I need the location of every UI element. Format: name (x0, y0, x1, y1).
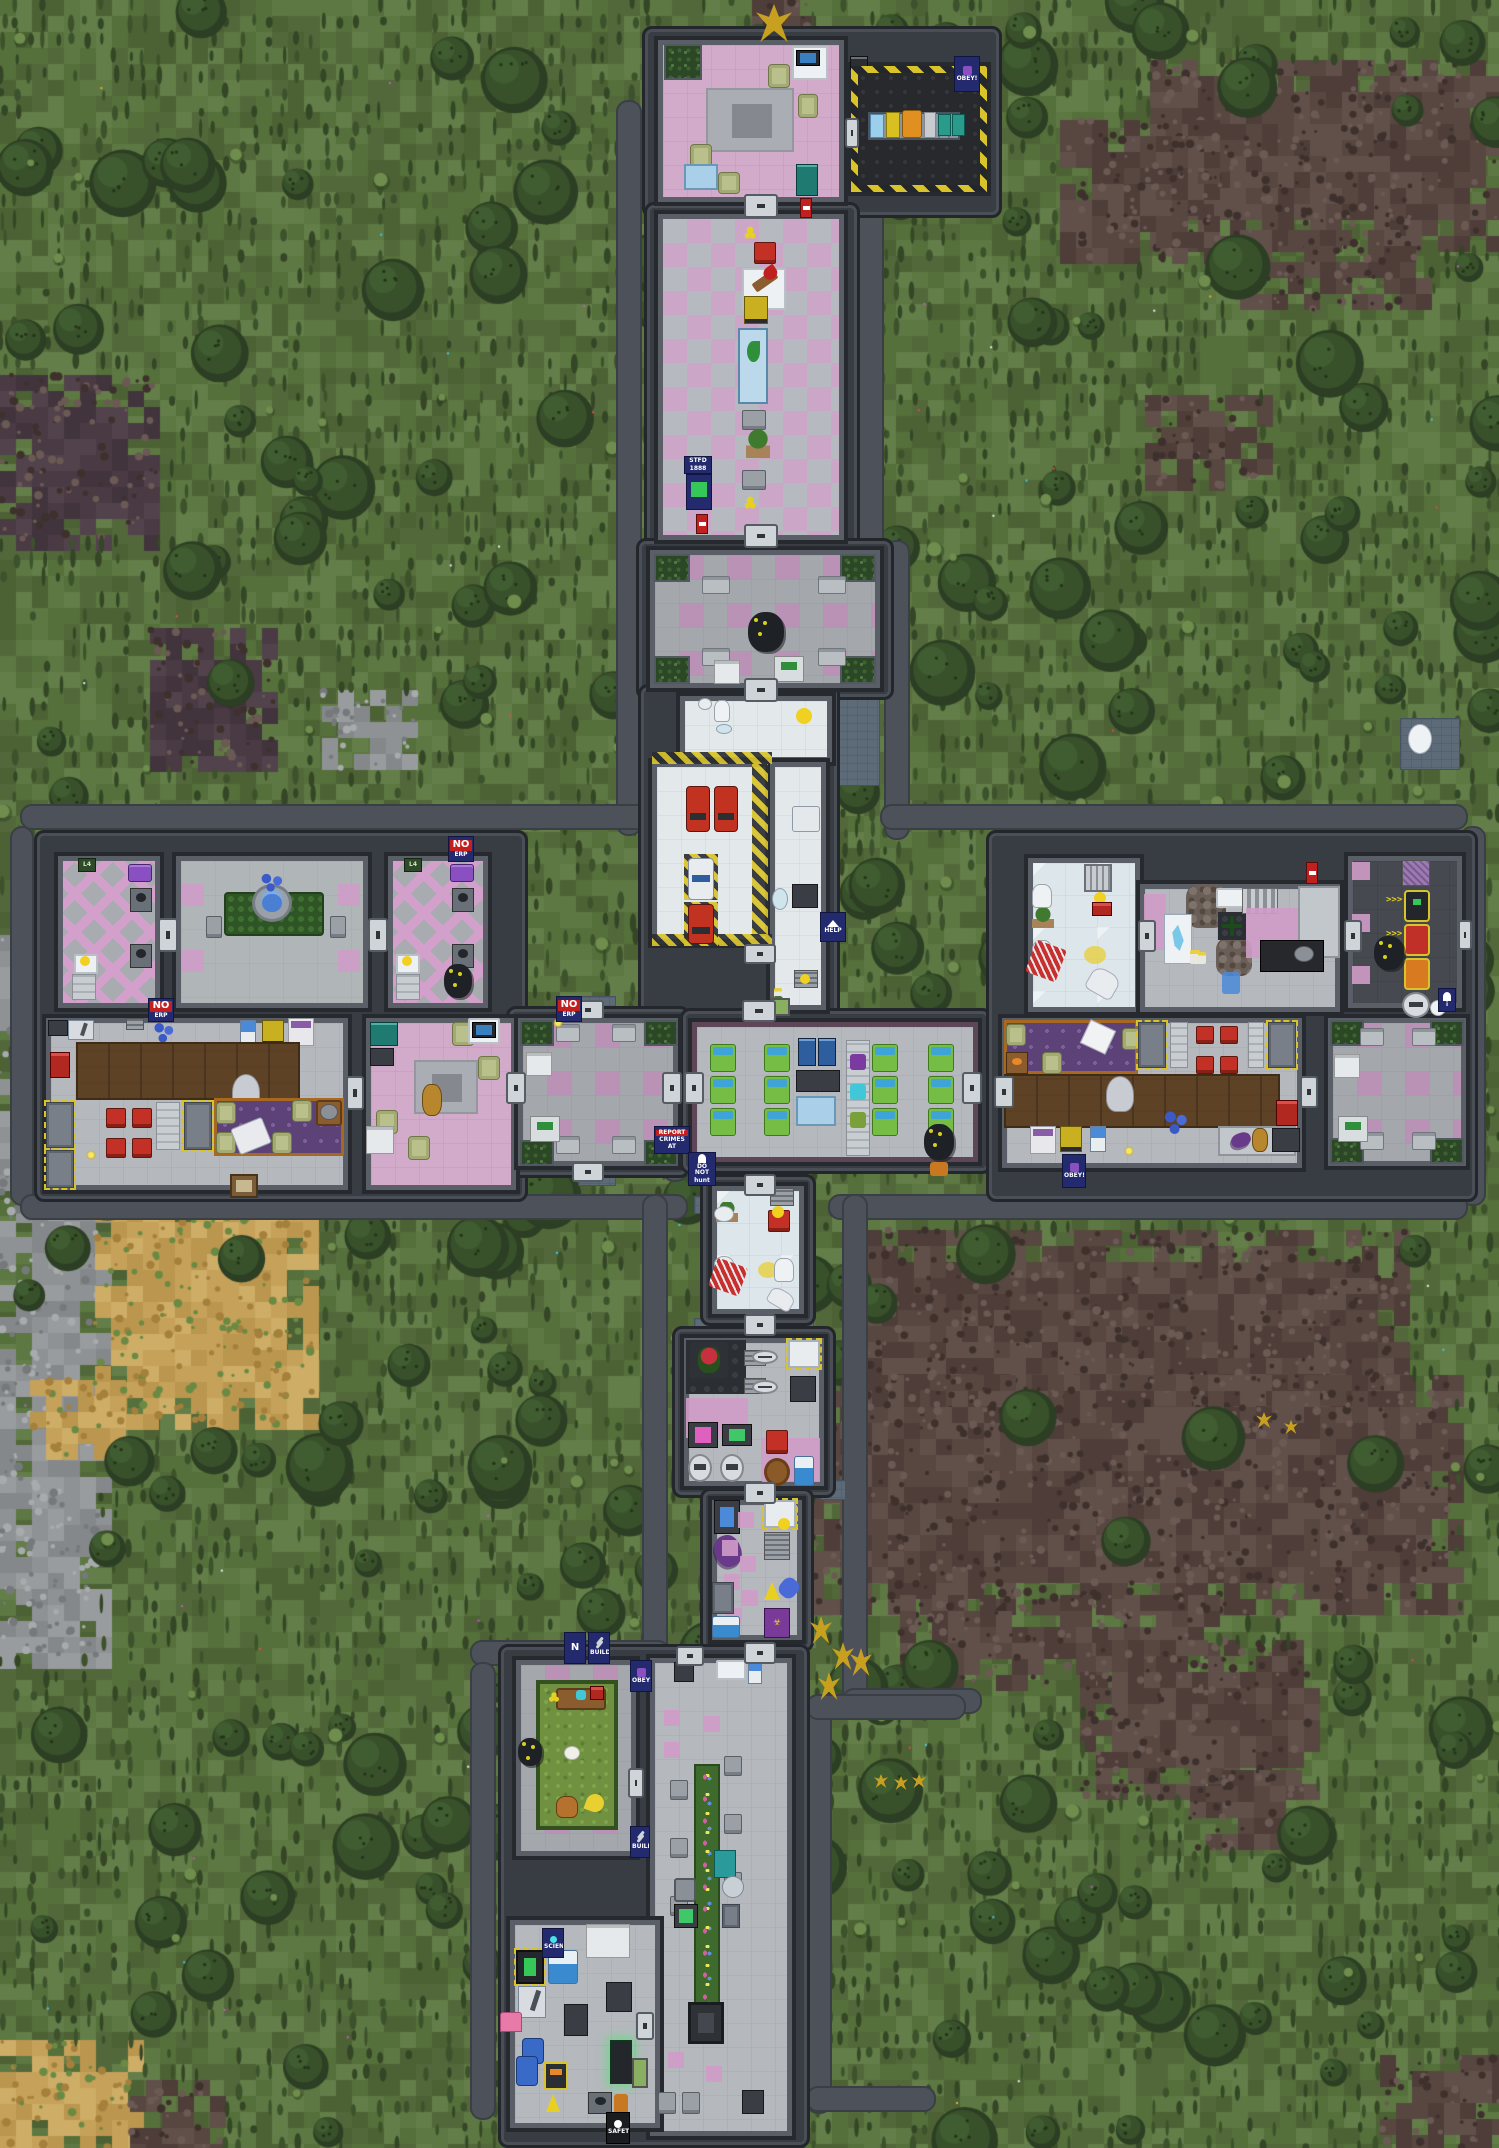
sign-text: NO (450, 840, 472, 851)
chair[interactable] (106, 1108, 126, 1128)
dark-creature[interactable] (518, 1738, 542, 1766)
rubber-duck[interactable] (402, 956, 412, 966)
dresser[interactable] (796, 1070, 840, 1092)
teal-bench[interactable] (714, 1850, 736, 1878)
medibot[interactable] (720, 1454, 744, 1482)
airlock-door[interactable] (962, 1072, 982, 1104)
road-path (880, 804, 1468, 830)
airlock-door[interactable] (684, 1072, 704, 1104)
chair[interactable] (742, 470, 766, 490)
atm-machine[interactable] (686, 474, 712, 510)
bench[interactable] (612, 1136, 636, 1154)
do-not-hunt-sign[interactable]: DO NOThunt (688, 1152, 716, 1186)
studio-camera[interactable] (452, 888, 474, 912)
arrow-decal: >>> (1386, 896, 1404, 908)
bench[interactable] (1360, 1028, 1384, 1046)
airlock-door[interactable] (1344, 920, 1362, 952)
chair[interactable] (1196, 1056, 1214, 1074)
sign-text: NO (150, 1001, 172, 1012)
sign-text: SAFETY! (608, 2129, 628, 2135)
bench[interactable] (818, 648, 846, 666)
studio-couch[interactable] (450, 864, 474, 882)
street-lamp[interactable] (1124, 1146, 1134, 1156)
airlock-door[interactable] (744, 678, 778, 702)
science-poster[interactable]: SCIENCE (542, 1928, 564, 1958)
cooler-box[interactable] (712, 1616, 740, 1638)
accent-tile (722, 1540, 738, 1556)
chair[interactable] (682, 2092, 700, 2114)
black-tank[interactable] (1404, 890, 1430, 922)
dark-figure[interactable] (444, 964, 472, 998)
chair[interactable] (766, 1430, 788, 1454)
vending-machine[interactable] (818, 1038, 836, 1066)
report-crimes-sign[interactable]: REPORTCRIMES AT (654, 1126, 690, 1154)
accent-tile (338, 884, 360, 906)
help-sign[interactable]: HELP (820, 912, 846, 942)
mesh-cot[interactable] (1402, 860, 1430, 886)
dorm-bed[interactable] (872, 1044, 898, 1072)
obey-poster[interactable]: OBEY! (1062, 1154, 1086, 1188)
pink-console[interactable] (688, 1422, 718, 1448)
dark-figure[interactable] (748, 612, 784, 652)
painting[interactable] (230, 1174, 258, 1198)
airlock-door[interactable] (572, 1162, 604, 1182)
airlock-door[interactable] (636, 2012, 654, 2040)
no-erp-sign[interactable]: NOERP (148, 998, 174, 1022)
photocopier[interactable] (526, 1052, 552, 1076)
television[interactable] (472, 1022, 496, 1038)
photocopier[interactable] (714, 660, 740, 684)
bath-mat (1222, 972, 1240, 994)
sink[interactable] (714, 1206, 734, 1222)
airlock-door[interactable] (628, 1768, 644, 1798)
pot[interactable] (320, 1104, 338, 1120)
airlock-door[interactable] (744, 1314, 776, 1336)
locker[interactable] (1268, 1022, 1296, 1068)
dorm-bed[interactable] (764, 1044, 790, 1072)
bench[interactable] (702, 576, 730, 594)
dorm-bed[interactable] (710, 1044, 736, 1072)
sign-text: L4 (406, 862, 420, 868)
wrench-icon (636, 1834, 644, 1843)
planter[interactable] (520, 1140, 554, 1166)
red-tank[interactable] (1404, 924, 1430, 956)
coffee-table[interactable] (684, 164, 718, 190)
airlock-door[interactable] (845, 118, 859, 148)
vendor[interactable] (530, 1116, 560, 1142)
sign-text: OBEY! (956, 76, 978, 82)
fire-engine[interactable] (714, 786, 738, 832)
cake[interactable] (500, 2012, 522, 2032)
cleaning-robot[interactable] (1402, 992, 1430, 1018)
airlock-door[interactable] (744, 524, 778, 548)
alarm-cabinet[interactable] (1276, 1100, 1298, 1126)
console-stack[interactable] (714, 1500, 740, 1534)
armchair[interactable] (272, 1132, 292, 1154)
display-case[interactable] (738, 328, 768, 404)
ghost-icon (698, 1154, 706, 1163)
studio-camera[interactable] (130, 944, 152, 968)
shower-stall[interactable] (72, 974, 96, 1000)
planter[interactable] (644, 1020, 678, 1046)
l4-sign[interactable]: L4 (78, 858, 96, 872)
sleeper[interactable] (544, 2062, 568, 2090)
armchair[interactable] (718, 172, 740, 194)
road-path (10, 826, 34, 1206)
safe[interactable] (674, 1878, 696, 1902)
airlock-door[interactable] (1458, 920, 1472, 950)
airlock-door[interactable] (744, 1642, 776, 1664)
hazard-strip (752, 764, 768, 936)
hay (548, 1692, 560, 1704)
sign-text: BUILD (590, 1650, 608, 1656)
game-map: >>>>>>☣NOERPNOERPNOERPOBEY!OBEY!OBEY!HEL… (0, 0, 1499, 2148)
sign-text: SCIENCE (544, 1944, 562, 1950)
road-path (858, 186, 884, 554)
cabinet[interactable] (790, 1376, 816, 1402)
planter[interactable] (654, 656, 690, 684)
dorm-bed[interactable] (928, 1044, 954, 1072)
mirror[interactable] (716, 724, 732, 734)
sign-text: L4 (80, 862, 94, 868)
shower-stall[interactable] (156, 1102, 180, 1150)
fire-engine[interactable] (688, 904, 714, 944)
airlock-door[interactable] (742, 1000, 776, 1022)
rubber-duck[interactable] (80, 956, 90, 966)
armchair[interactable] (1006, 1024, 1026, 1046)
whiteboard[interactable] (1216, 888, 1244, 908)
airlock-door[interactable] (368, 918, 388, 952)
obey-poster[interactable]: OBEY! (630, 1660, 652, 1692)
airlock-door[interactable] (744, 944, 776, 964)
dorm-bed[interactable] (872, 1108, 898, 1136)
airlock-door[interactable] (744, 1174, 776, 1196)
airlock-door[interactable] (744, 1482, 776, 1504)
rubber-duck[interactable] (800, 974, 810, 984)
wall-unit[interactable] (792, 884, 818, 908)
sign-text: OBEY! (632, 1678, 650, 1684)
anomaly[interactable] (610, 2040, 632, 2084)
wrench-icon (595, 1640, 603, 1649)
work-table[interactable] (796, 1096, 836, 1126)
chair[interactable] (132, 1108, 152, 1128)
blue-flowers[interactable] (1162, 1108, 1190, 1138)
mech-frame[interactable] (516, 2056, 538, 2086)
no-erp-sign[interactable]: NOERP (448, 836, 474, 862)
locker[interactable] (46, 1102, 74, 1148)
water-cooler[interactable] (1090, 1126, 1106, 1152)
arcade-machine[interactable] (1060, 1126, 1082, 1152)
microscope[interactable] (518, 1986, 546, 2018)
stasis-pod[interactable] (752, 1350, 778, 1364)
nest[interactable] (564, 1746, 580, 1760)
armchair[interactable] (478, 1056, 500, 1080)
safety-poster[interactable]: SAFETY! (606, 2112, 630, 2144)
planter[interactable] (654, 554, 690, 582)
pew[interactable] (724, 1814, 742, 1834)
satellite-dish[interactable] (722, 1876, 744, 1898)
ambulance[interactable] (688, 858, 714, 900)
locker[interactable] (46, 1150, 74, 1188)
fist-icon (637, 1668, 646, 1677)
camera-unit[interactable] (588, 2092, 612, 2114)
fist-icon (963, 66, 972, 75)
white-bear[interactable] (1408, 724, 1432, 754)
vending-machine[interactable] (798, 1038, 816, 1066)
accent-tile (706, 2066, 722, 2082)
photocopier[interactable] (1334, 1054, 1360, 1078)
wheat-decal (744, 496, 756, 512)
ghost-info-sign[interactable]: i (1438, 988, 1456, 1012)
dorm-bed[interactable] (764, 1076, 790, 1104)
dog[interactable] (556, 1796, 578, 1818)
vendor[interactable] (1338, 1116, 1368, 1142)
dorm-bed[interactable] (710, 1108, 736, 1136)
extinguisher-cabinet[interactable] (1306, 862, 1318, 884)
console[interactable] (722, 1424, 752, 1446)
kitchen-mixer[interactable] (68, 1020, 94, 1040)
airlock-door[interactable] (1138, 920, 1156, 952)
gem[interactable] (576, 1690, 586, 1700)
box[interactable] (850, 1084, 866, 1100)
tv-set[interactable] (564, 2004, 588, 2036)
wall-art[interactable] (632, 2058, 648, 2088)
airlock-door[interactable] (346, 1076, 364, 1110)
ghost-statue[interactable] (1106, 1076, 1134, 1112)
analyzer[interactable] (788, 1340, 820, 1368)
backpack[interactable] (850, 1112, 866, 1128)
photocopier[interactable] (586, 1924, 630, 1958)
accent-tile (338, 950, 360, 972)
animal-cage[interactable] (1084, 864, 1112, 892)
extinguisher-cabinet[interactable] (800, 198, 812, 218)
accent-tile (664, 1742, 680, 1758)
specimen-table[interactable] (1164, 914, 1192, 964)
vending-machine[interactable] (370, 1022, 398, 1046)
jail-cabinet[interactable] (764, 1532, 790, 1560)
airlock-door[interactable] (158, 918, 178, 952)
candle[interactable] (1198, 952, 1206, 964)
sign-text: DO NOT (690, 1164, 714, 1177)
street-lamp[interactable] (86, 1150, 96, 1160)
accent-tile (740, 1556, 756, 1572)
rose-plant[interactable] (690, 1342, 728, 1378)
arcade-marquee[interactable]: STFD1888 (684, 456, 712, 474)
cleanbot[interactable] (796, 708, 812, 724)
armchair[interactable] (798, 94, 818, 118)
road-path (20, 804, 660, 830)
planter[interactable] (520, 1020, 554, 1046)
console[interactable] (674, 1904, 698, 1928)
pew[interactable] (670, 1838, 688, 1858)
fire-engine[interactable] (686, 786, 710, 832)
toilet[interactable] (774, 1258, 794, 1282)
whiteboard[interactable] (716, 1660, 746, 1680)
ghost-icon (1443, 992, 1451, 1001)
chair[interactable] (754, 242, 776, 264)
wheat-decal (744, 226, 756, 242)
locker[interactable] (712, 1582, 734, 1614)
pew[interactable] (670, 1780, 688, 1800)
locker[interactable] (184, 1102, 212, 1150)
bio-locker[interactable]: ☣ (764, 1608, 790, 1638)
planter[interactable] (1330, 1020, 1364, 1046)
toilet[interactable] (714, 700, 730, 722)
accent-tile (1352, 862, 1370, 880)
cabinet[interactable] (722, 1904, 740, 1928)
airlock-door[interactable] (676, 1646, 704, 1666)
accent-tile (182, 950, 204, 972)
medibot[interactable] (688, 1454, 712, 1482)
accent-tile (738, 1512, 754, 1528)
sign-text: OBEY! (1064, 1173, 1084, 1179)
extinguisher-cabinet[interactable] (696, 514, 708, 534)
bar-counter (76, 1042, 300, 1100)
dark-figure[interactable] (924, 1124, 954, 1160)
road-path (470, 1662, 496, 2120)
sign-text: ERP (558, 1012, 580, 1018)
fabricator[interactable] (516, 1950, 544, 1984)
chair[interactable] (132, 1138, 152, 1158)
red-toolbox[interactable] (1092, 902, 1112, 916)
armchair[interactable] (292, 1100, 312, 1122)
vending-machine[interactable] (796, 164, 818, 196)
sign-text: STFD (686, 458, 710, 464)
sign-text: i (1440, 1002, 1454, 1008)
road-path (806, 2086, 936, 2112)
airlock-door[interactable] (994, 1076, 1014, 1108)
vendor[interactable] (774, 656, 804, 682)
pan[interactable] (1294, 946, 1314, 962)
sign-text: 1888 (686, 466, 710, 472)
sign-text: N (566, 1643, 584, 1654)
gold-statuette[interactable] (1252, 1128, 1268, 1152)
toolbox[interactable] (590, 1686, 604, 1700)
recharger[interactable] (744, 296, 768, 324)
accent-tile (1352, 966, 1370, 984)
soda-dispenser[interactable] (50, 1052, 70, 1078)
studio-couch[interactable] (128, 864, 152, 882)
face-icon (614, 2120, 622, 2128)
airlock-door[interactable] (506, 1072, 526, 1104)
dorm-bed[interactable] (764, 1108, 790, 1136)
shower-stall[interactable] (396, 974, 420, 1000)
floor-scale[interactable] (126, 1018, 144, 1030)
dorm-bed[interactable] (928, 1076, 954, 1104)
altar[interactable] (688, 2002, 724, 2044)
cabinet[interactable] (1272, 1128, 1300, 1152)
accent-tile (664, 1710, 680, 1726)
cabinet[interactable] (370, 1048, 394, 1066)
hazard-strip (652, 752, 772, 764)
radio-table[interactable] (1006, 1052, 1028, 1074)
bench[interactable] (1412, 1132, 1436, 1150)
orange-tank[interactable] (1404, 958, 1430, 990)
palm-leaf[interactable] (1032, 908, 1054, 928)
road-path (842, 1194, 868, 1714)
microwave[interactable] (48, 1020, 68, 1036)
airlock-door[interactable] (744, 194, 778, 218)
armored-figure[interactable] (422, 1084, 442, 1116)
fountain-spray[interactable] (258, 872, 286, 894)
duckling[interactable] (772, 1206, 784, 1218)
monitor[interactable] (366, 1126, 394, 1154)
armchair[interactable] (1042, 1052, 1062, 1074)
stasis-pod[interactable] (752, 1380, 778, 1394)
television[interactable] (796, 50, 820, 66)
sign-text: ERP (450, 852, 472, 858)
armchair[interactable] (768, 64, 790, 88)
chair[interactable] (1220, 1056, 1238, 1074)
shower-stall[interactable] (1248, 1022, 1264, 1068)
stove[interactable] (1260, 940, 1324, 972)
mirror[interactable] (772, 888, 788, 910)
fuel-tank[interactable] (614, 2094, 628, 2114)
airlock-door[interactable] (1300, 1076, 1318, 1108)
chair[interactable] (106, 1138, 126, 1158)
bar-counter (1004, 1074, 1280, 1128)
accent-tile (704, 1716, 720, 1732)
bench[interactable] (612, 1024, 636, 1042)
chair[interactable] (206, 916, 222, 938)
l4-sign[interactable]: L4 (404, 858, 422, 872)
dorm-bed[interactable] (872, 1076, 898, 1104)
bench[interactable] (818, 576, 846, 594)
chair[interactable] (742, 410, 766, 430)
chair[interactable] (330, 916, 346, 938)
mount-icon (827, 920, 839, 927)
n-flag-poster[interactable]: N (564, 1632, 586, 1664)
sign-text: NO (558, 1000, 580, 1011)
rubber-duck[interactable] (778, 1518, 790, 1530)
tool-shelf[interactable] (606, 1982, 632, 2012)
potted-plant[interactable] (746, 430, 770, 458)
stain (1084, 946, 1106, 964)
armchair[interactable] (408, 1136, 430, 1160)
dorm-bed[interactable] (710, 1076, 736, 1104)
utility-cart[interactable] (792, 806, 820, 832)
build-poster[interactable]: BUILD (588, 1632, 610, 1664)
sign-text: HELP (822, 928, 844, 934)
dark-seat[interactable] (742, 2090, 764, 2114)
chair[interactable] (1220, 1026, 1238, 1044)
smart-fridge[interactable] (794, 1456, 814, 1486)
obey-poster[interactable]: OBEY! (954, 56, 980, 92)
airlock-door[interactable] (662, 1072, 682, 1104)
locker[interactable] (1138, 1022, 1166, 1068)
corner-plants[interactable] (664, 44, 702, 80)
dark-figure[interactable] (1374, 936, 1404, 970)
chair[interactable] (1196, 1026, 1214, 1044)
lounge-rug-center (732, 104, 772, 138)
armchair[interactable] (216, 1102, 236, 1124)
sign-text: ERP (150, 1013, 172, 1019)
shower-stall[interactable] (1170, 1022, 1188, 1068)
accent-tile (668, 2052, 684, 2068)
satchel[interactable] (930, 1162, 948, 1176)
build-poster[interactable]: BUILD (630, 1826, 650, 1858)
sink[interactable] (698, 698, 712, 710)
chair[interactable] (658, 2092, 676, 2114)
no-erp-sign[interactable]: NOERP (556, 996, 582, 1022)
toilet[interactable] (1032, 884, 1052, 908)
road-path (642, 1194, 668, 1664)
bench[interactable] (1412, 1028, 1436, 1046)
pew[interactable] (724, 1756, 742, 1776)
backpack[interactable] (850, 1054, 866, 1070)
studio-camera[interactable] (130, 888, 152, 912)
massage-bed[interactable] (1030, 1126, 1056, 1154)
